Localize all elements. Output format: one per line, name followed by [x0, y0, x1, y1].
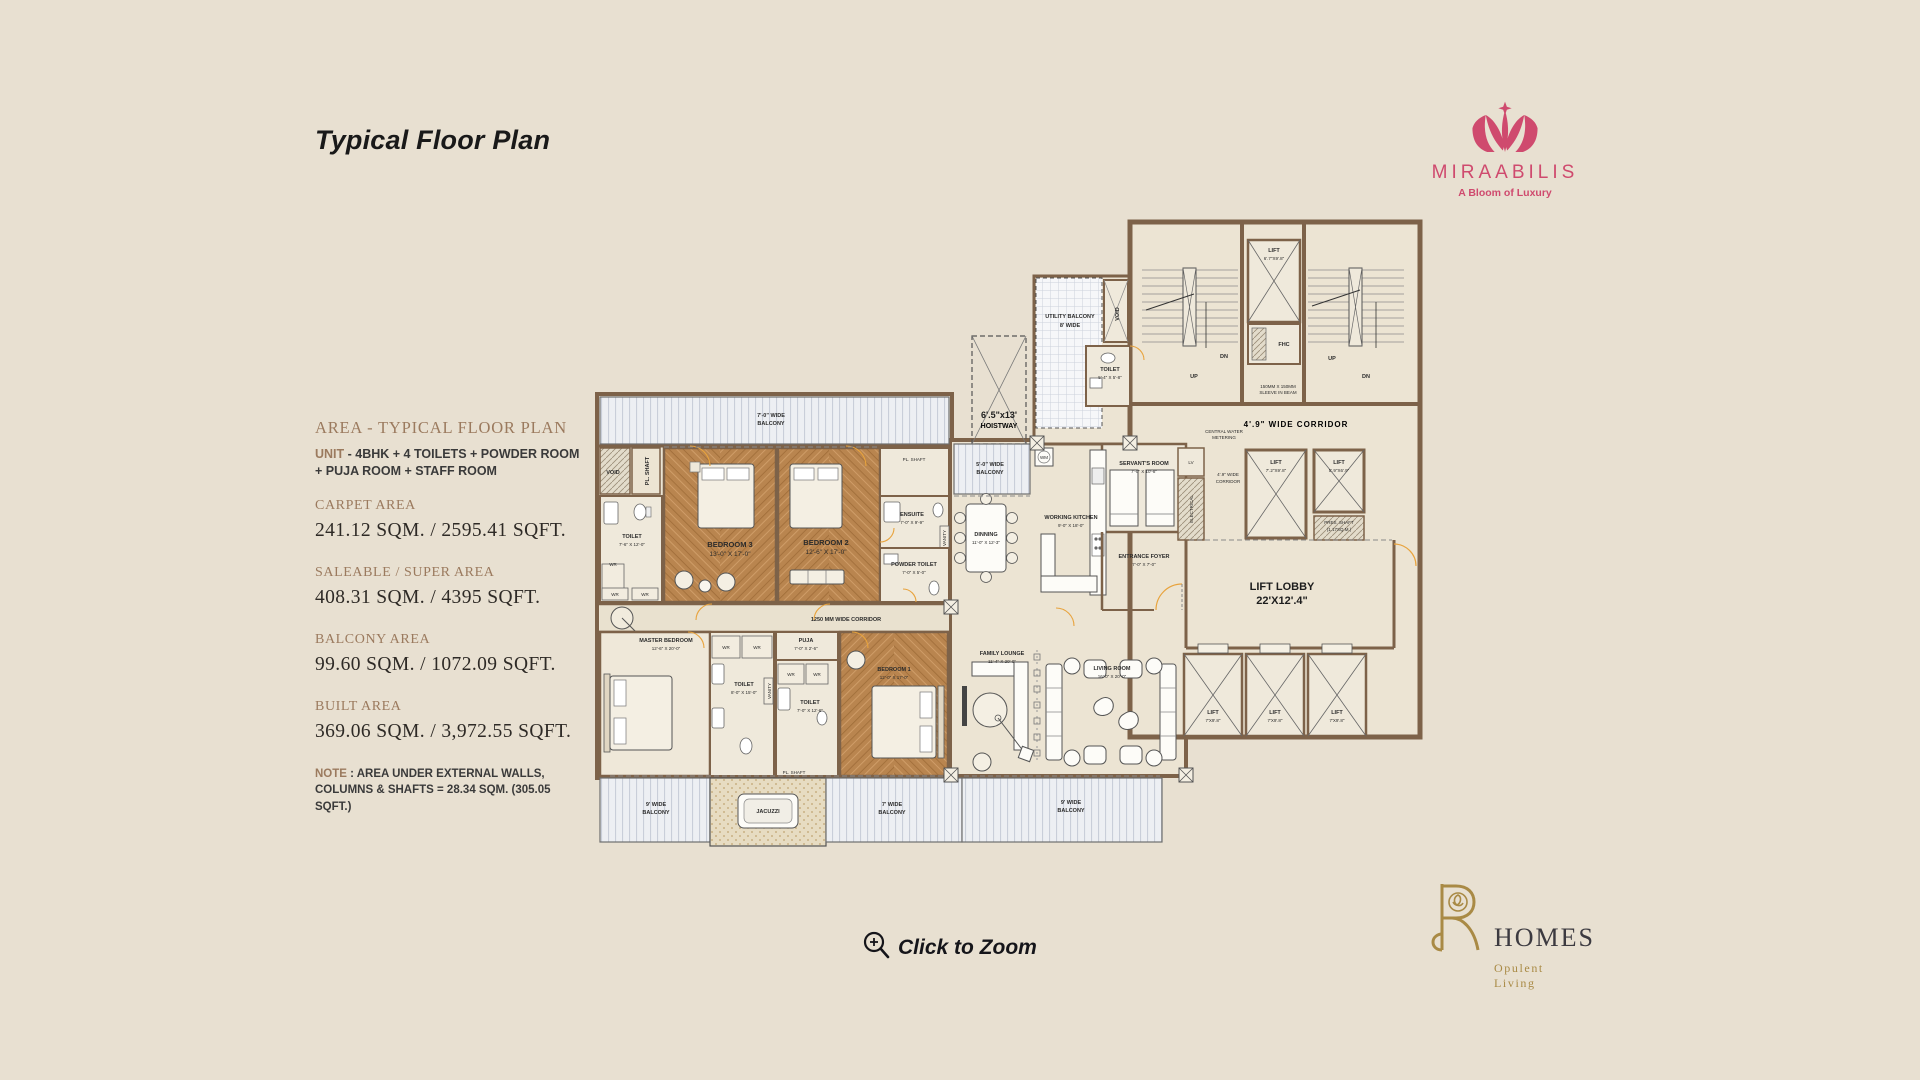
toilet-sm-dims: 5'-4" X 5'-8": [1098, 375, 1122, 380]
pres-shaft-dims: (1.17SQ.M.): [1327, 527, 1352, 532]
balcony7b-label: 7' WIDE: [882, 802, 903, 808]
balcony-9-right: 9' WIDE BALCONY: [962, 778, 1162, 842]
wr-label-g: WR: [813, 672, 821, 677]
lift3-label: LIFT: [1331, 710, 1343, 716]
stair-right-up: UP: [1328, 356, 1336, 362]
lifts-bottom: LIFT 7'X9'.8" LIFT 7'X9'.8" LIFT 7'X9'.8…: [1184, 644, 1366, 736]
lift2-label: LIFT: [1269, 710, 1281, 716]
pres-shaft-label: PRES. SHAFT: [1324, 520, 1354, 525]
carpet-area-value: 241.12 SQM. / 2595.41 SQFT.: [315, 520, 585, 542]
toilet1-dims: 7'-0" X 12'-6": [797, 708, 823, 713]
lift-b-dims: 5'.9"X6'.9": [1329, 468, 1350, 473]
kitchen-label: WORKING KITCHEN: [1044, 515, 1097, 521]
hoistway-label: 6'.5"x13': [981, 410, 1017, 420]
cwm-label-2: METERING: [1212, 435, 1236, 440]
hoistway-label2: HOISTWAY: [981, 423, 1018, 430]
homes-wordmark: HOMES: [1494, 923, 1595, 953]
master-dims: 12'-6" X 20'-0": [652, 646, 681, 651]
puja-label: PUJA: [799, 638, 814, 644]
servants-label: SERVANT'S ROOM: [1119, 461, 1169, 467]
living-label: LIVING ROOM: [1094, 666, 1131, 672]
pl-shaft-tr: PL. SHAFT: [903, 457, 926, 462]
bedroom3-label: BEDROOM 3: [707, 540, 752, 549]
balcony-area-value: 99.60 SQM. / 1072.09 SQFT.: [315, 654, 585, 676]
room-bedroom-1: BEDROOM 1 12'-0" X 17'-0": [840, 632, 948, 776]
lift-lobby-label: LIFT LOBBY: [1250, 581, 1315, 593]
balcony-top-label: 7'-0" WIDE: [757, 413, 785, 419]
sleeve-note-2: SLEEVE IN BEAM: [1259, 390, 1297, 395]
built-area-label: BUILT AREA: [315, 699, 585, 715]
bedroom3-dims: 13'-0" X 17'-0": [709, 551, 751, 558]
pr-rose-monogram-icon: [1428, 878, 1490, 961]
room-ensuite: PL. SHAFT ENSUITE 7'-0" X 9'-9" VANITY: [880, 448, 949, 548]
balcony9r-label2: BALCONY: [1057, 808, 1085, 814]
unit-line1: - 4BHK + 4 TOILETS + POWDER ROOM: [344, 447, 579, 461]
balcony-area-item: BALCONY AREA 99.60 SQM. / 1072.09 SQFT.: [315, 632, 585, 676]
corridor1250-label: 1250 MM WIDE CORRIDOR: [811, 617, 881, 623]
room-toilet-bed1: WR WR TOILET 7'-0" X 12'-6": [776, 660, 838, 776]
dining-label: DINNING: [974, 532, 997, 538]
balcony9l-label2: BALCONY: [642, 810, 670, 816]
page-title: Typical Floor Plan: [315, 125, 550, 156]
bedroom2-dims: 12'-6" X 17'-0": [805, 549, 847, 556]
saleable-area-value: 408.31 SQM. / 4395 SQFT.: [315, 587, 585, 609]
stair-right-dn: DN: [1362, 374, 1370, 380]
toilet-sm-label: TOILET: [1100, 367, 1120, 373]
room-servants: SERVANT'S ROOM 7'-0" X 10'-8": [1102, 444, 1186, 532]
toilet1-label: TOILET: [800, 700, 820, 706]
bedroom1-dims: 12'-0" X 17'-0": [880, 675, 909, 680]
carpet-area-item: CARPET AREA 241.12 SQM. / 2595.41 SQFT.: [315, 498, 585, 542]
room-toilet-master: WR WR TOILET 8'-0" X 15'-0" VANITY: [710, 632, 774, 776]
balcony-top: 7'-0" WIDE BALCONY: [597, 397, 952, 446]
saleable-area-label: SALEABLE / SUPER AREA: [315, 565, 585, 581]
built-area-item: BUILT AREA 369.06 SQM. / 3,972.55 SQFT.: [315, 699, 585, 743]
stair-left-up: UP: [1190, 374, 1198, 380]
built-area-value: 369.06 SQM. / 3,972.55 SQFT.: [315, 721, 585, 743]
wr-label-d: WR: [722, 645, 730, 650]
kitchen-dims: 9'-0" X 18'-0": [1058, 523, 1084, 528]
toilet3-dims: 7'-6" X 12'-0": [619, 542, 645, 547]
lift2-dims: 7'X9'.8": [1267, 718, 1282, 723]
powder-label: POWDER TOILET: [891, 562, 937, 568]
saleable-area-item: SALEABLE / SUPER AREA 408.31 SQM. / 4395…: [315, 565, 585, 609]
brand-pr-homes: HOMES Opulent Living: [1428, 878, 1588, 991]
magnifier-plus-icon: [862, 930, 890, 965]
note-label: NOTE: [315, 768, 347, 780]
wr-label-b: WR: [611, 592, 619, 597]
toilet3-label: TOILET: [622, 534, 642, 540]
miraabilis-flower-icon: [1425, 100, 1585, 158]
lift-a-label: LIFT: [1270, 460, 1282, 466]
corridor49v-2: CORRIDOR: [1216, 479, 1241, 484]
sleeve-note-1: 150MM X 150MM: [1260, 384, 1296, 389]
lift1-dims: 7'X9'.8": [1205, 718, 1220, 723]
utility-label2: 8' WIDE: [1060, 323, 1081, 329]
family-label: FAMILY LOUNGE: [980, 651, 1025, 657]
area-note: NOTE : AREA UNDER EXTERNAL WALLS, COLUMN…: [315, 766, 585, 816]
balcony7b-label2: BALCONY: [878, 810, 906, 816]
puja-dims: 7'-0" X 2'-6": [794, 646, 818, 651]
void2-label: VOID: [1115, 307, 1121, 320]
room-bedroom-2: BEDROOM 2 12'-6" X 17'-0": [778, 448, 880, 602]
lift-top-dims: 6'.7"X9'.8": [1264, 256, 1285, 261]
balcony-9-left: 9' WIDE BALCONY: [600, 778, 710, 842]
room-toilet-bed3: TOILET 7'-6" X 12'-0" WR WR WR: [600, 496, 662, 602]
wr-label-c: WR: [641, 592, 649, 597]
balcony5-label2: BALCONY: [976, 470, 1004, 476]
ensuite-label: ENSUITE: [900, 512, 924, 518]
unit-line2: + PUJA ROOM + STAFF ROOM: [315, 464, 497, 478]
corridor49v-1: 4'.9" WIDE: [1217, 472, 1239, 477]
dining-dims: 11'-0" X 12'-3": [972, 540, 1000, 545]
pl-shaft-bottom: PL. SHAFT: [783, 770, 806, 775]
void-utility: VOID: [1104, 280, 1128, 342]
room-master-bedroom: MASTER BEDROOM 12'-6" X 20'-0": [600, 632, 710, 776]
brand-tagline: A Bloom of Luxury: [1425, 187, 1585, 199]
master-label: MASTER BEDROOM: [639, 638, 693, 644]
fhc-label: FHC: [1278, 342, 1289, 348]
bedroom1-label: BEDROOM 1: [877, 667, 910, 673]
note-line1: : AREA UNDER EXTERNAL WALLS,: [347, 768, 545, 780]
wr-label-a: WR: [609, 562, 617, 567]
balcony-area-label: BALCONY AREA: [315, 632, 585, 648]
carpet-area-label: CARPET AREA: [315, 498, 585, 514]
wm-label: WM: [1040, 455, 1048, 460]
balcony9r-label: 9' WIDE: [1061, 800, 1082, 806]
floor-plan[interactable]: 7'-0" WIDE BALCONY BEDROOM 3 13'-0" X 17…: [594, 218, 1424, 850]
entrance-label: ENTRANCE FOYER: [1118, 554, 1169, 560]
lift-b: LIFT 5'.9"X6'.9": [1314, 450, 1364, 512]
powder-dims: 7'-0" X 5'-0": [902, 570, 926, 575]
zoom-button-label: Click to Zoom: [898, 936, 1037, 960]
cwm-label-1: CENTRAL WATER: [1205, 429, 1244, 434]
lift3-dims: 7'X9'.8": [1329, 718, 1344, 723]
shaft-void-left: VOID PL. SHAFT: [600, 448, 660, 494]
area-panel: AREA - TYPICAL FLOOR PLAN UNIT - 4BHK + …: [315, 418, 585, 816]
homes-tagline: Opulent Living: [1494, 961, 1588, 991]
balcony-5: 5'-0" WIDE BALCONY: [954, 444, 1030, 494]
hoistway: 6'.5"x13' HOISTWAY: [972, 336, 1026, 444]
living-dims: 16'-0" X 20'-0": [1098, 674, 1127, 679]
unit-description: UNIT - 4BHK + 4 TOILETS + POWDER ROOM + …: [315, 446, 585, 480]
room-toilet-small: TOILET 5'-4" X 5'-8": [1086, 346, 1130, 406]
brand-miraabilis: MIRAABILIS A Bloom of Luxury: [1425, 100, 1585, 199]
lift-top-label: LIFT: [1268, 248, 1280, 254]
brand-name: MIRAABILIS: [1425, 162, 1585, 184]
balcony-7-bottom: 7' WIDE BALCONY: [826, 778, 962, 842]
lift-a-dims: 7'.2"X9'.8": [1266, 468, 1287, 473]
room-powder-toilet: POWDER TOILET 7'-0" X 5'-0": [880, 548, 949, 602]
pl-shaft-label: PL. SHAFT: [645, 456, 651, 485]
wr-label-f: WR: [787, 672, 795, 677]
wr-label-e: WR: [753, 645, 761, 650]
room-puja: PUJA 7'-0" X 2'-6": [776, 632, 838, 660]
balcony5-label: 5'-0" WIDE: [976, 462, 1004, 468]
room-bedroom-3: BEDROOM 3 13'-0" X 17'-0": [664, 448, 776, 602]
jacuzzi-label: JACUZZI: [756, 809, 780, 815]
toiletm-label: TOILET: [734, 682, 754, 688]
electrical-label: ELECTRICAL: [1189, 495, 1194, 523]
note-line2: COLUMNS & SHAFTS = 28.34 SQM. (305.05 SQ…: [315, 784, 551, 813]
void-label: VOID: [606, 470, 619, 476]
family-dims: 11'-4" X 20'-0": [988, 659, 1016, 664]
vanity-label-2: VANITY: [767, 683, 772, 699]
lift-a: LIFT 7'.2"X9'.8": [1246, 450, 1306, 538]
click-to-zoom-button[interactable]: Click to Zoom: [862, 930, 1037, 965]
balcony9l-label: 9' WIDE: [646, 802, 667, 808]
lv-label: LV: [1188, 460, 1193, 465]
entrance-dims: 7'-0" X 7'-0": [1132, 562, 1156, 567]
lift-lobby-dims: 22'X12'.4": [1256, 595, 1307, 607]
lift1-label: LIFT: [1207, 710, 1219, 716]
utility-label: UTILITY BALCONY: [1045, 314, 1095, 320]
lift-b-label: LIFT: [1333, 460, 1345, 466]
corridor-1250: 1250 MM WIDE CORRIDOR: [597, 604, 952, 634]
jacuzzi-deck: JACUZZI PL. SHAFT: [710, 770, 826, 846]
toiletm-dims: 8'-0" X 15'-0": [731, 690, 757, 695]
vanity-label-1: VANITY: [942, 530, 947, 546]
unit-label: UNIT: [315, 447, 344, 461]
stair-left-dn: DN: [1220, 354, 1228, 360]
area-panel-heading: AREA - TYPICAL FLOOR PLAN: [315, 418, 585, 438]
corridor49h-label: 4'.9" WIDE CORRIDOR: [1244, 420, 1349, 429]
servants-dims: 7'-0" X 10'-8": [1131, 469, 1157, 474]
ensuite-dims: 7'-0" X 9'-9": [900, 520, 924, 525]
balcony-top-label2: BALCONY: [757, 421, 785, 427]
bedroom2-label: BEDROOM 2: [803, 538, 848, 547]
pressure-shaft: PRES. SHAFT (1.17SQ.M.): [1314, 516, 1364, 540]
